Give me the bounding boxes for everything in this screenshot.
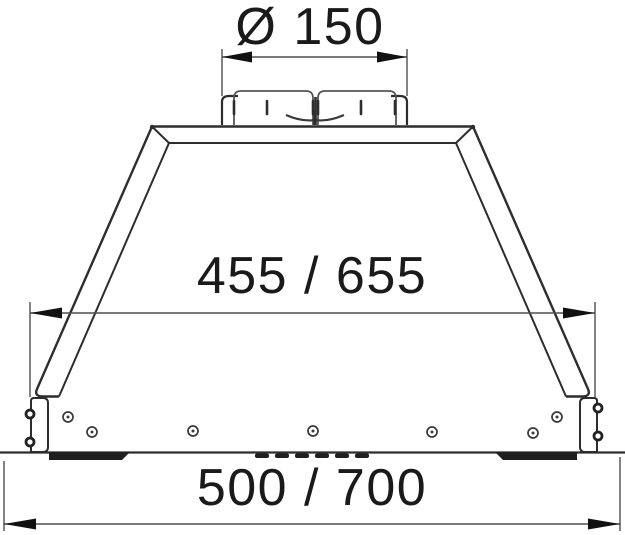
duct-collar [222, 91, 407, 125]
arrowhead-left-icon [30, 308, 62, 319]
screw-icon [26, 438, 34, 446]
body-width-extension-lines [30, 302, 595, 397]
center-rail-dashes [255, 454, 369, 459]
collar-outer-right [391, 96, 407, 125]
overall-width-label: 500 / 700 [197, 459, 427, 517]
end-cap-screws [26, 404, 602, 446]
screw-icon [594, 432, 602, 440]
rivet-icon [63, 412, 73, 422]
rivet-icon [427, 427, 437, 437]
foot-right [495, 452, 577, 460]
top-edge-inner [152, 127, 473, 144]
collar-outer-left [222, 96, 238, 125]
rivet-icon [552, 412, 562, 422]
rivet-icon [308, 426, 318, 436]
screw-icon [26, 410, 34, 418]
arrowhead-left-icon [4, 519, 36, 530]
left-side-inner [59, 143, 169, 397]
foot-left [49, 452, 130, 460]
bottom-panel [0, 398, 625, 460]
duct-diameter-dimension: Ø 150 [222, 0, 407, 96]
hood-elevation-drawing: Ø 150 [0, 0, 625, 535]
overall-width-dimension: 500 / 700 [4, 457, 620, 531]
rivet-icon [188, 426, 198, 436]
body-width-label: 455 / 655 [197, 247, 427, 305]
right-side-inner [456, 143, 566, 397]
rivets [63, 412, 562, 438]
left-side-outer [36, 127, 152, 397]
technical-drawing: Ø 150 [0, 0, 625, 535]
duct-diameter-label: Ø 150 [235, 0, 384, 56]
screw-icon [594, 404, 602, 412]
arrowhead-right-icon [588, 519, 620, 530]
rivet-icon [87, 427, 97, 437]
rivet-icon [528, 428, 538, 438]
arrowhead-right-icon [377, 52, 407, 63]
arrowhead-right-icon [563, 308, 595, 319]
right-side-outer [473, 127, 589, 397]
